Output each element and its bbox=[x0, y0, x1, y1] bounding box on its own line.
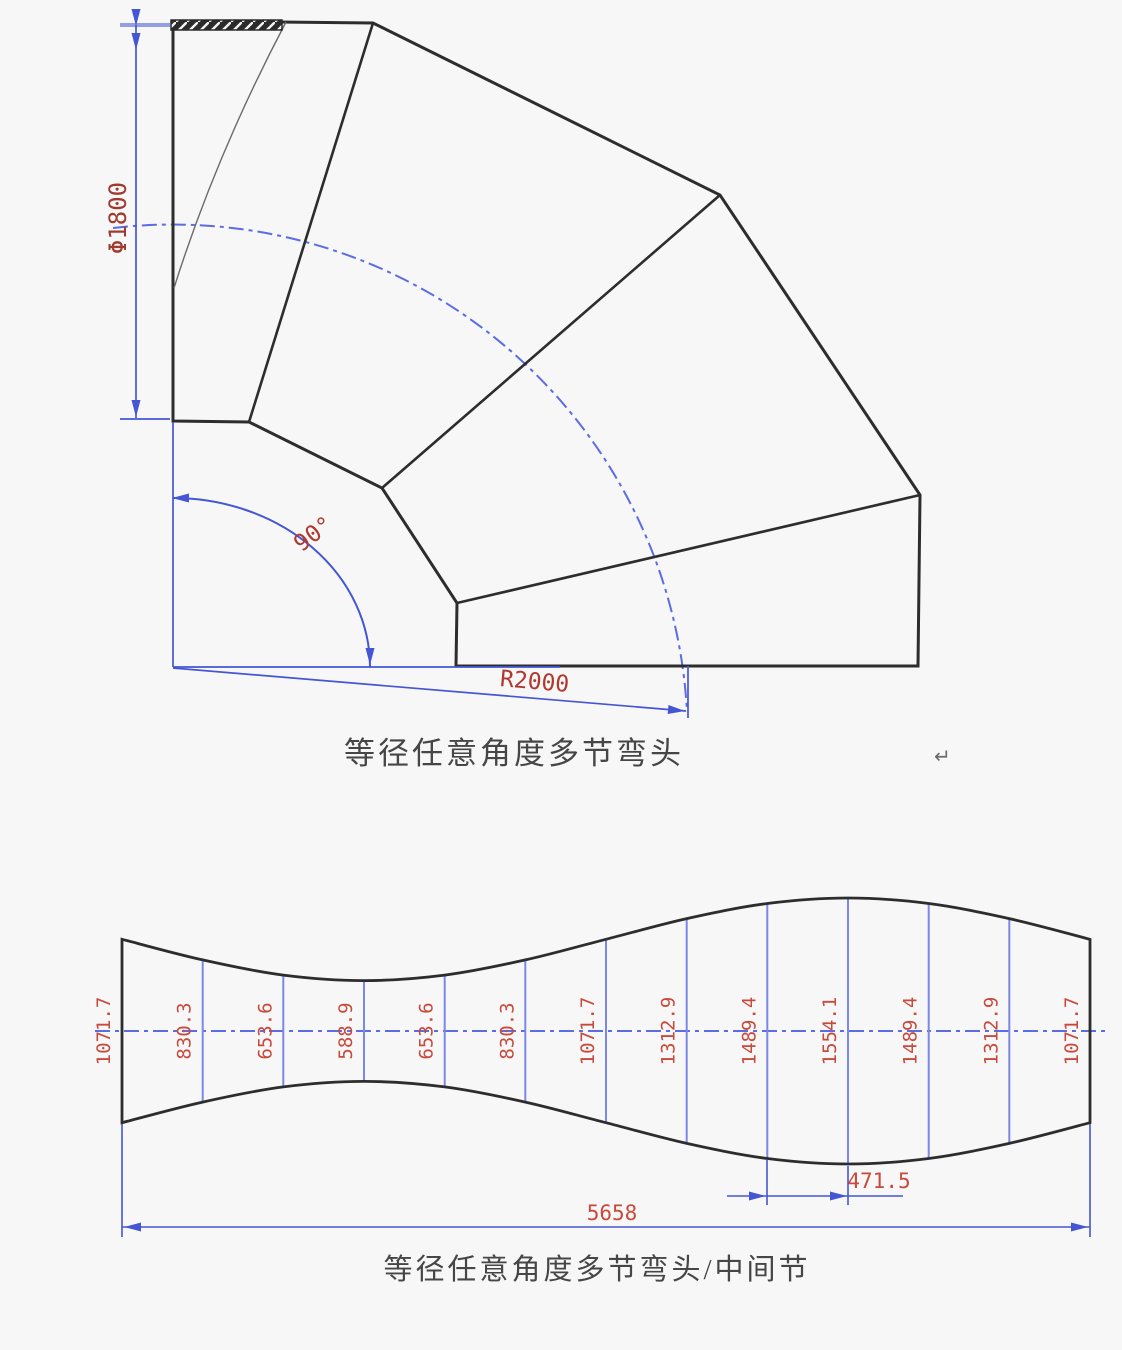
bottom-caption: 等径任意角度多节弯头/中间节 bbox=[383, 1253, 810, 1286]
elbow-side-view: Φ1800 90° R2000 等径任意角度多节弯头 ↵ bbox=[104, 20, 951, 771]
joint-line-2 bbox=[382, 195, 720, 488]
ordinate-label: 588.9 bbox=[335, 1002, 357, 1059]
arrowhead bbox=[830, 1192, 847, 1201]
ordinate-label: 1489.4 bbox=[738, 997, 760, 1066]
cad-canvas: Φ1800 90° R2000 等径任意角度多节弯头 ↵ 1071.7830.3… bbox=[0, 0, 1122, 1350]
paragraph-return-mark: ↵ bbox=[934, 744, 951, 768]
ordinate-label: 653.6 bbox=[254, 1002, 276, 1059]
ordinate-label: 653.6 bbox=[416, 1002, 438, 1059]
ordinate-label: 830.3 bbox=[496, 1002, 518, 1059]
overall-label: 5658 bbox=[587, 1201, 638, 1225]
arrowhead bbox=[366, 648, 375, 665]
radius-label: R2000 bbox=[499, 666, 570, 698]
arrowhead bbox=[1071, 1223, 1088, 1232]
ordinate-label: 830.3 bbox=[174, 1002, 196, 1059]
joint-line-1 bbox=[249, 23, 373, 422]
page: { "colors": { "bg": "#f7f7f7", "line": "… bbox=[0, 0, 1122, 1350]
diameter-label: Φ1800 bbox=[104, 182, 132, 254]
ordinate-label: 1071.7 bbox=[1061, 997, 1083, 1066]
arrowhead bbox=[668, 705, 686, 715]
joint-line-3 bbox=[457, 495, 920, 603]
arrowhead bbox=[172, 494, 189, 503]
ordinate-label: 1554.1 bbox=[819, 997, 841, 1066]
ordinate-label: 1312.9 bbox=[658, 997, 680, 1066]
diameter-dimension: Φ1800 bbox=[104, 25, 170, 419]
arrowhead bbox=[132, 400, 141, 417]
dim-line-radius bbox=[173, 668, 686, 711]
elbow-outline bbox=[173, 21, 920, 666]
inlet-hatch-strip bbox=[171, 20, 282, 30]
ordinate-label: 1489.4 bbox=[900, 997, 922, 1066]
seam-curve bbox=[174, 22, 286, 288]
development-view: 1071.7830.3653.6588.9653.6830.31071.7131… bbox=[93, 898, 1105, 1286]
arrowhead bbox=[749, 1192, 766, 1201]
arrowhead bbox=[132, 33, 141, 50]
overall-dimension: 5658 bbox=[122, 1124, 1090, 1237]
pitch-label: 471.5 bbox=[847, 1169, 910, 1193]
angle-arc bbox=[173, 498, 370, 667]
top-caption: 等径任意角度多节弯头 bbox=[344, 736, 684, 771]
angle-dimension: 90° bbox=[173, 422, 560, 667]
radius-dimension: R2000 bbox=[173, 666, 688, 718]
arrowhead bbox=[124, 1223, 141, 1232]
ordinate-label: 1071.7 bbox=[93, 997, 115, 1066]
angle-label: 90° bbox=[289, 512, 338, 558]
ordinate-label: 1312.9 bbox=[980, 997, 1002, 1066]
ordinate-label: 1071.7 bbox=[577, 997, 599, 1066]
